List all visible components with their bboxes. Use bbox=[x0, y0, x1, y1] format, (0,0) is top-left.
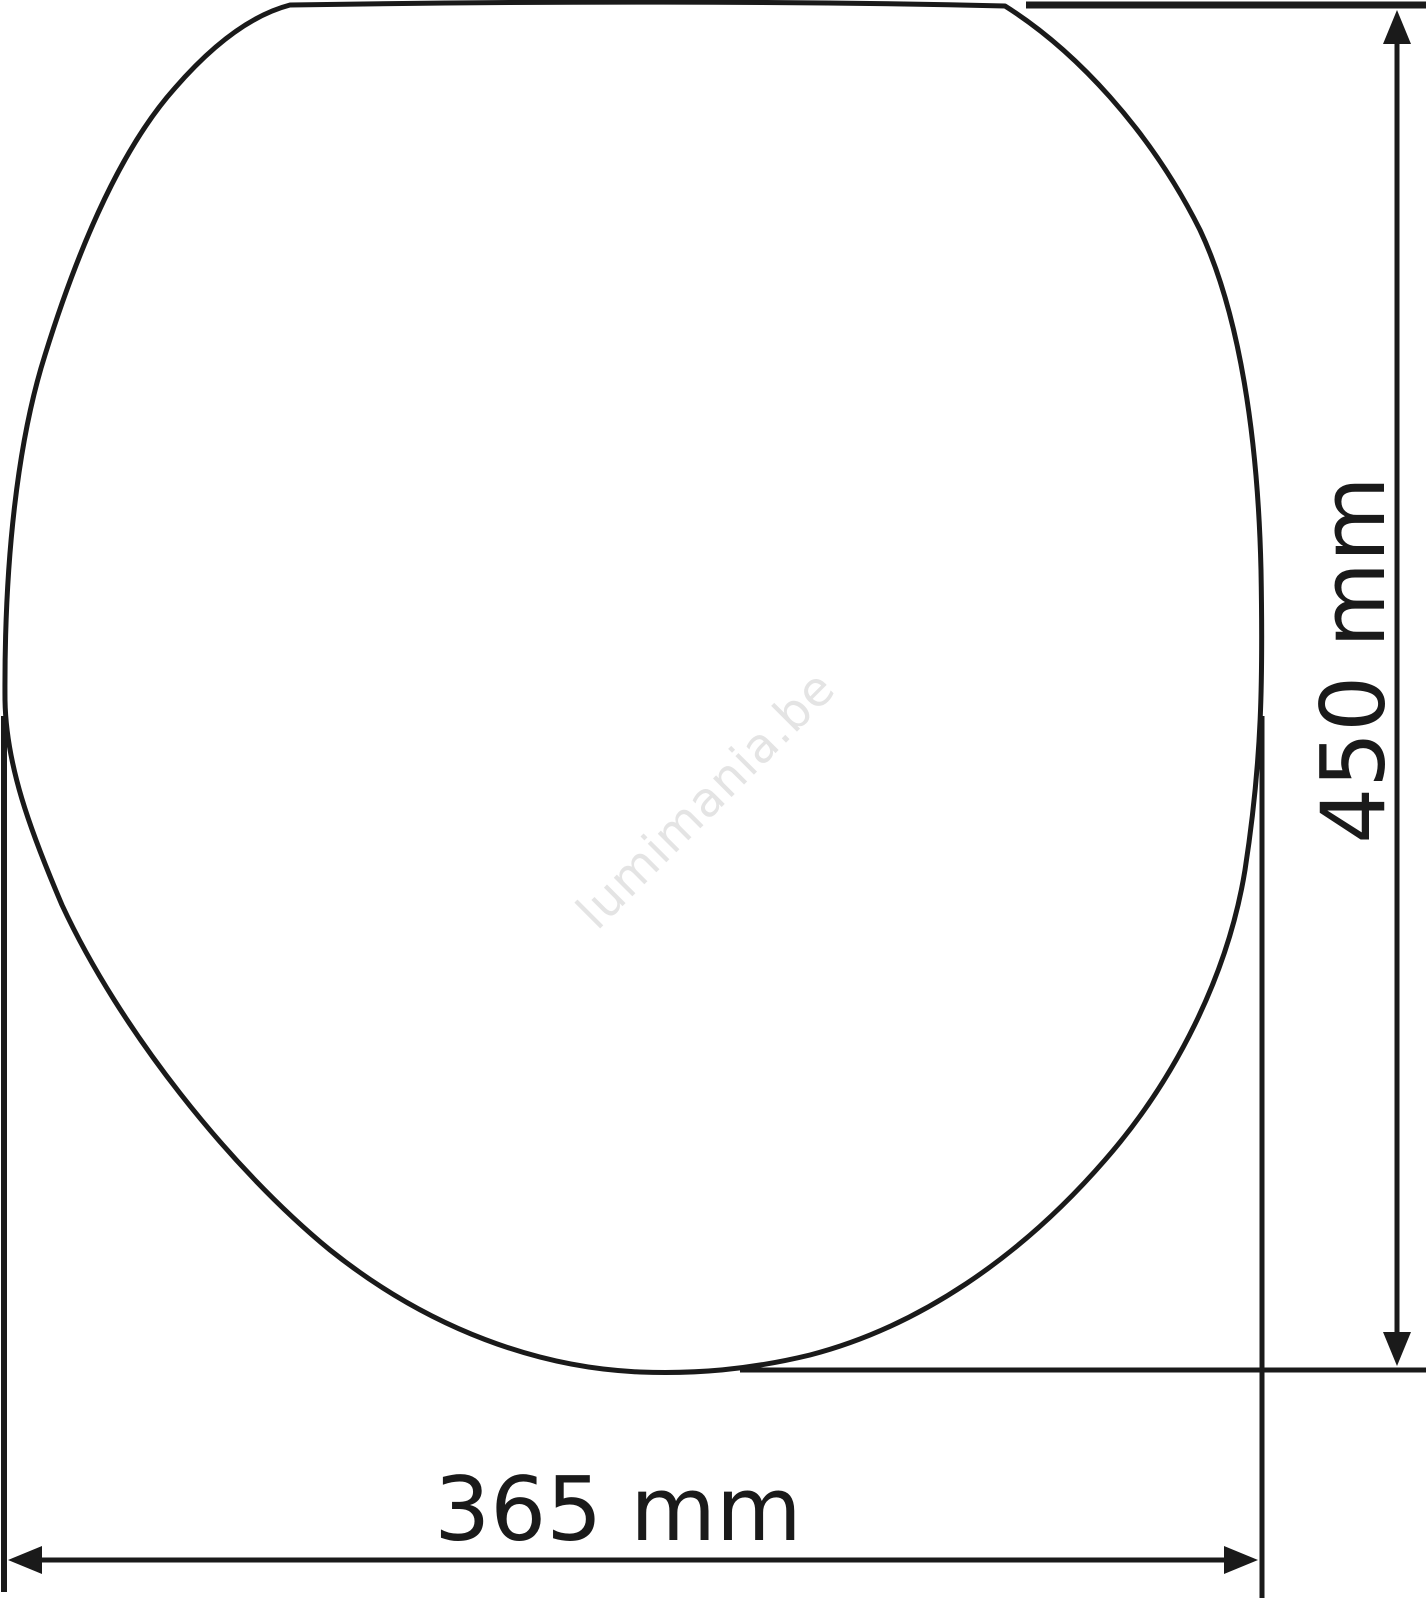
arrow-up-icon bbox=[1383, 10, 1411, 44]
arrow-down-icon bbox=[1383, 1332, 1411, 1366]
height-dimension-label: 450 mm bbox=[1302, 476, 1405, 843]
width-dimension-label: 365 mm bbox=[434, 1458, 801, 1561]
seat-outline bbox=[5, 2, 1262, 1372]
arrow-right-icon bbox=[1224, 1546, 1258, 1574]
dimension-diagram: lumimania.be 450 mm 365 mm bbox=[0, 0, 1426, 1600]
arrow-left-icon bbox=[8, 1546, 42, 1574]
diagram-svg: lumimania.be 450 mm 365 mm bbox=[0, 0, 1426, 1600]
